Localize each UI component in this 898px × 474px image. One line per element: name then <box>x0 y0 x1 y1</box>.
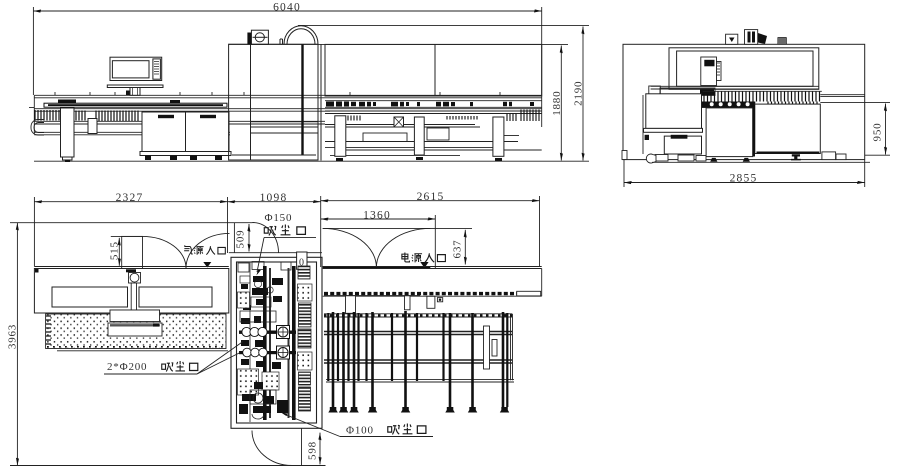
svg-text:2855: 2855 <box>730 173 758 185</box>
svg-text:515: 515 <box>108 241 120 260</box>
svg-text:1360: 1360 <box>363 209 391 221</box>
svg-text:Φ100: Φ100 <box>346 425 374 437</box>
svg-text:2615: 2615 <box>417 191 445 203</box>
svg-text:509: 509 <box>235 230 247 249</box>
svg-text:3963: 3963 <box>7 324 19 349</box>
svg-text:637: 637 <box>452 240 464 259</box>
svg-text:Φ150: Φ150 <box>265 212 293 224</box>
svg-text:6040: 6040 <box>273 1 301 13</box>
svg-text:1880: 1880 <box>551 91 563 116</box>
svg-text:2327: 2327 <box>116 192 144 204</box>
svg-text:950: 950 <box>872 123 884 142</box>
svg-text:598: 598 <box>307 441 319 460</box>
svg-text:2190: 2190 <box>573 81 585 106</box>
svg-text:1098: 1098 <box>260 192 288 204</box>
svg-text:2*Φ200: 2*Φ200 <box>107 361 147 373</box>
